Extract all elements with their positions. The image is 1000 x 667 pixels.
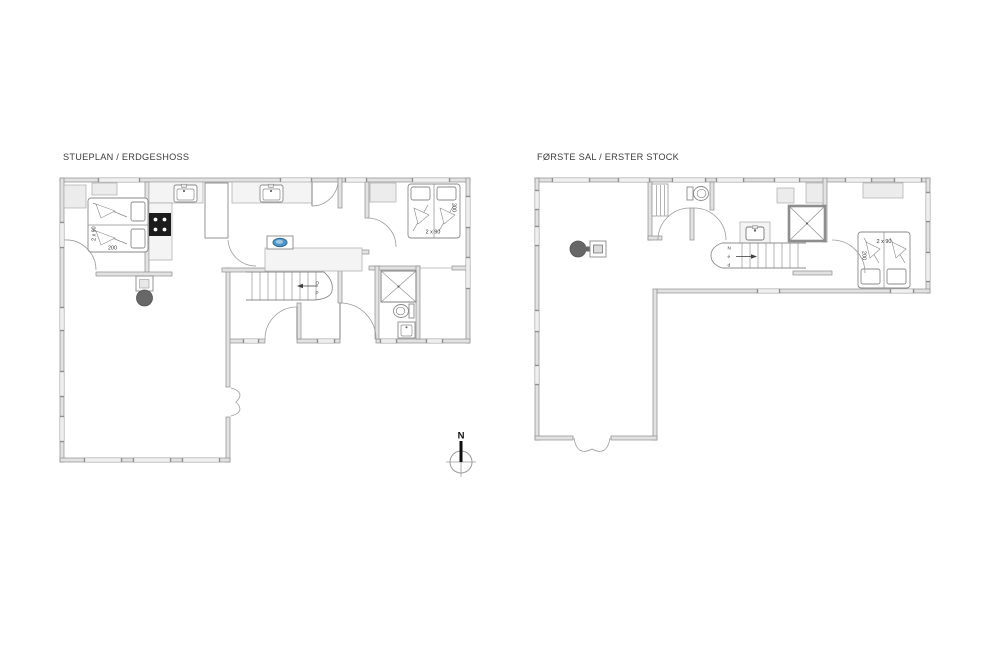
stairs-direction-label: e [728, 254, 731, 259]
wardrobe-icon [863, 183, 903, 198]
bed-width-label: 2 x 90 [426, 230, 441, 236]
first-floor-plan: FØRSTE SAL / ERSTER STOCK [535, 152, 930, 451]
stairs-direction-label: d [728, 263, 731, 268]
bedroom-upstairs: 2 x 90 200 [858, 183, 910, 288]
door-swing [312, 182, 338, 206]
stairs-direction-label: O [316, 281, 320, 286]
stairs-direction-label: P [316, 291, 319, 296]
staircase-icon: N e d [711, 243, 806, 268]
wardrobe-icon [370, 183, 396, 202]
double-bed-icon: 200 2 x 90 [408, 184, 460, 238]
wardrobe-icon [806, 183, 823, 203]
ground-floor-plan: STUEPLAN / ERDGESHOSS [60, 152, 470, 462]
bedroom-right: 200 2 x 90 [370, 183, 460, 238]
kitchen [149, 182, 362, 271]
bathroom [381, 271, 416, 338]
tall-cabinet [205, 183, 228, 238]
floor-plan-drawing: STUEPLAN / ERDGESHOSS [0, 0, 1000, 667]
wood-stove-icon [570, 241, 606, 257]
wardrobe-icon [92, 183, 117, 195]
bed-width-label: 2 x 90 [877, 239, 892, 245]
shower-icon [789, 206, 825, 241]
bathroom-upstairs [652, 184, 709, 216]
toilet-icon [687, 187, 709, 201]
first-floor-title: FØRSTE SAL / ERSTER STOCK [537, 152, 680, 162]
toilet-icon [394, 304, 415, 318]
cooktop-icon [149, 213, 171, 236]
kitchen-sink-icon [174, 184, 197, 202]
ground-floor-title: STUEPLAN / ERDGESHOSS [63, 152, 189, 162]
kitchen-sink-icon [260, 184, 283, 202]
staircase-icon: O P [246, 272, 332, 300]
washbasin-icon [740, 222, 770, 243]
wardrobe-icon [64, 185, 86, 208]
french-door-icon [231, 388, 240, 416]
shower-icon [381, 271, 416, 302]
floor-plan-page: STUEPLAN / ERDGESHOSS [0, 0, 1000, 667]
first-floor-walls [535, 178, 930, 440]
bed-length-label: 200 [451, 203, 457, 212]
compass-north-label: N [458, 431, 465, 442]
kitchen-island [265, 236, 362, 271]
wardrobe-icon [777, 188, 794, 203]
bed-length-label: 200 [108, 246, 117, 252]
door-swing [228, 240, 256, 266]
door-swing [340, 303, 376, 339]
wardrobe-icon [652, 184, 668, 216]
washbasin-icon [398, 322, 415, 338]
door-swing [368, 218, 396, 247]
wood-stove-icon [136, 276, 153, 306]
double-bed-icon: 2 x 90 200 [858, 232, 910, 288]
door-swing [694, 208, 726, 240]
compass-north-indicator: N [446, 431, 476, 478]
double-bed-icon: 2 x 90 200 [88, 198, 148, 252]
entrance-door-swing [265, 307, 297, 339]
stairs-direction-label: N [728, 246, 731, 251]
double-door-icon [574, 438, 610, 451]
bed-width-label: 2 x 90 [92, 226, 98, 241]
